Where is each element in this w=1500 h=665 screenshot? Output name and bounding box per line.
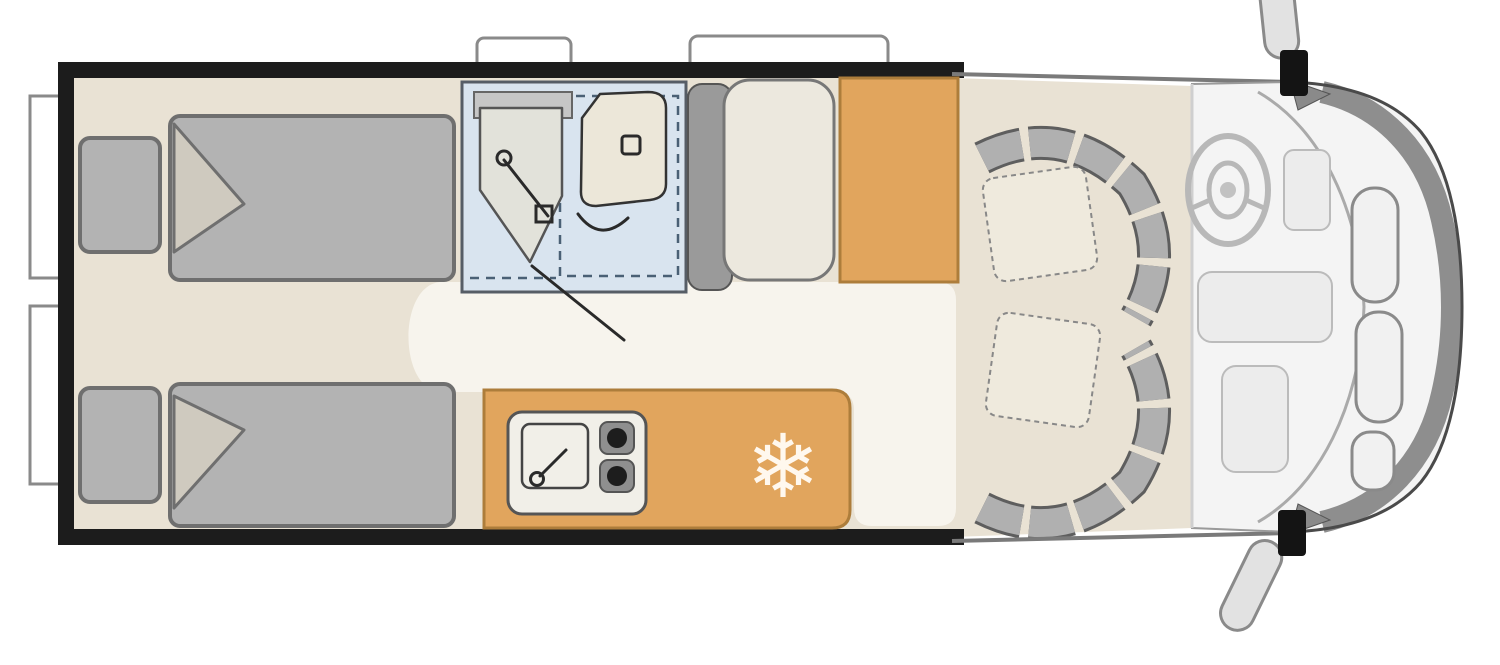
- kitchen-block: ❄: [484, 390, 850, 528]
- bottom-wall: [58, 529, 964, 545]
- hob-burner-2: [607, 466, 627, 486]
- hob-burner-1: [607, 428, 627, 448]
- bottom-mirror-joint: [1278, 510, 1306, 556]
- bench-seat: [724, 80, 834, 280]
- glovebox: [1222, 366, 1288, 472]
- top-mirror-joint: [1280, 50, 1308, 96]
- motorhome-floorplan: ❄: [0, 0, 1500, 665]
- rear-left-window: [30, 96, 62, 278]
- floorplan-canvas: ❄: [0, 0, 1500, 665]
- instrument-cluster: [1284, 150, 1330, 230]
- seat-cushion: [981, 165, 1098, 282]
- wardrobe: [840, 78, 958, 282]
- headlight-grille-1: [1352, 188, 1398, 302]
- top-wall: [58, 62, 964, 78]
- pillow-bottom-bed: [80, 388, 160, 502]
- rear-wall: [58, 62, 74, 545]
- center-console: [1198, 272, 1332, 342]
- rear-left-window-2: [30, 306, 62, 484]
- seat-cushion: [984, 311, 1101, 428]
- headlight-grille-2: [1356, 312, 1402, 422]
- steering-wheel-hub: [1220, 182, 1236, 198]
- bottom-wing-mirror: [1215, 535, 1288, 636]
- headlight-grille-3: [1352, 432, 1394, 490]
- fridge-snowflake-icon: ❄: [746, 415, 820, 518]
- pillow-top-bed: [80, 138, 160, 252]
